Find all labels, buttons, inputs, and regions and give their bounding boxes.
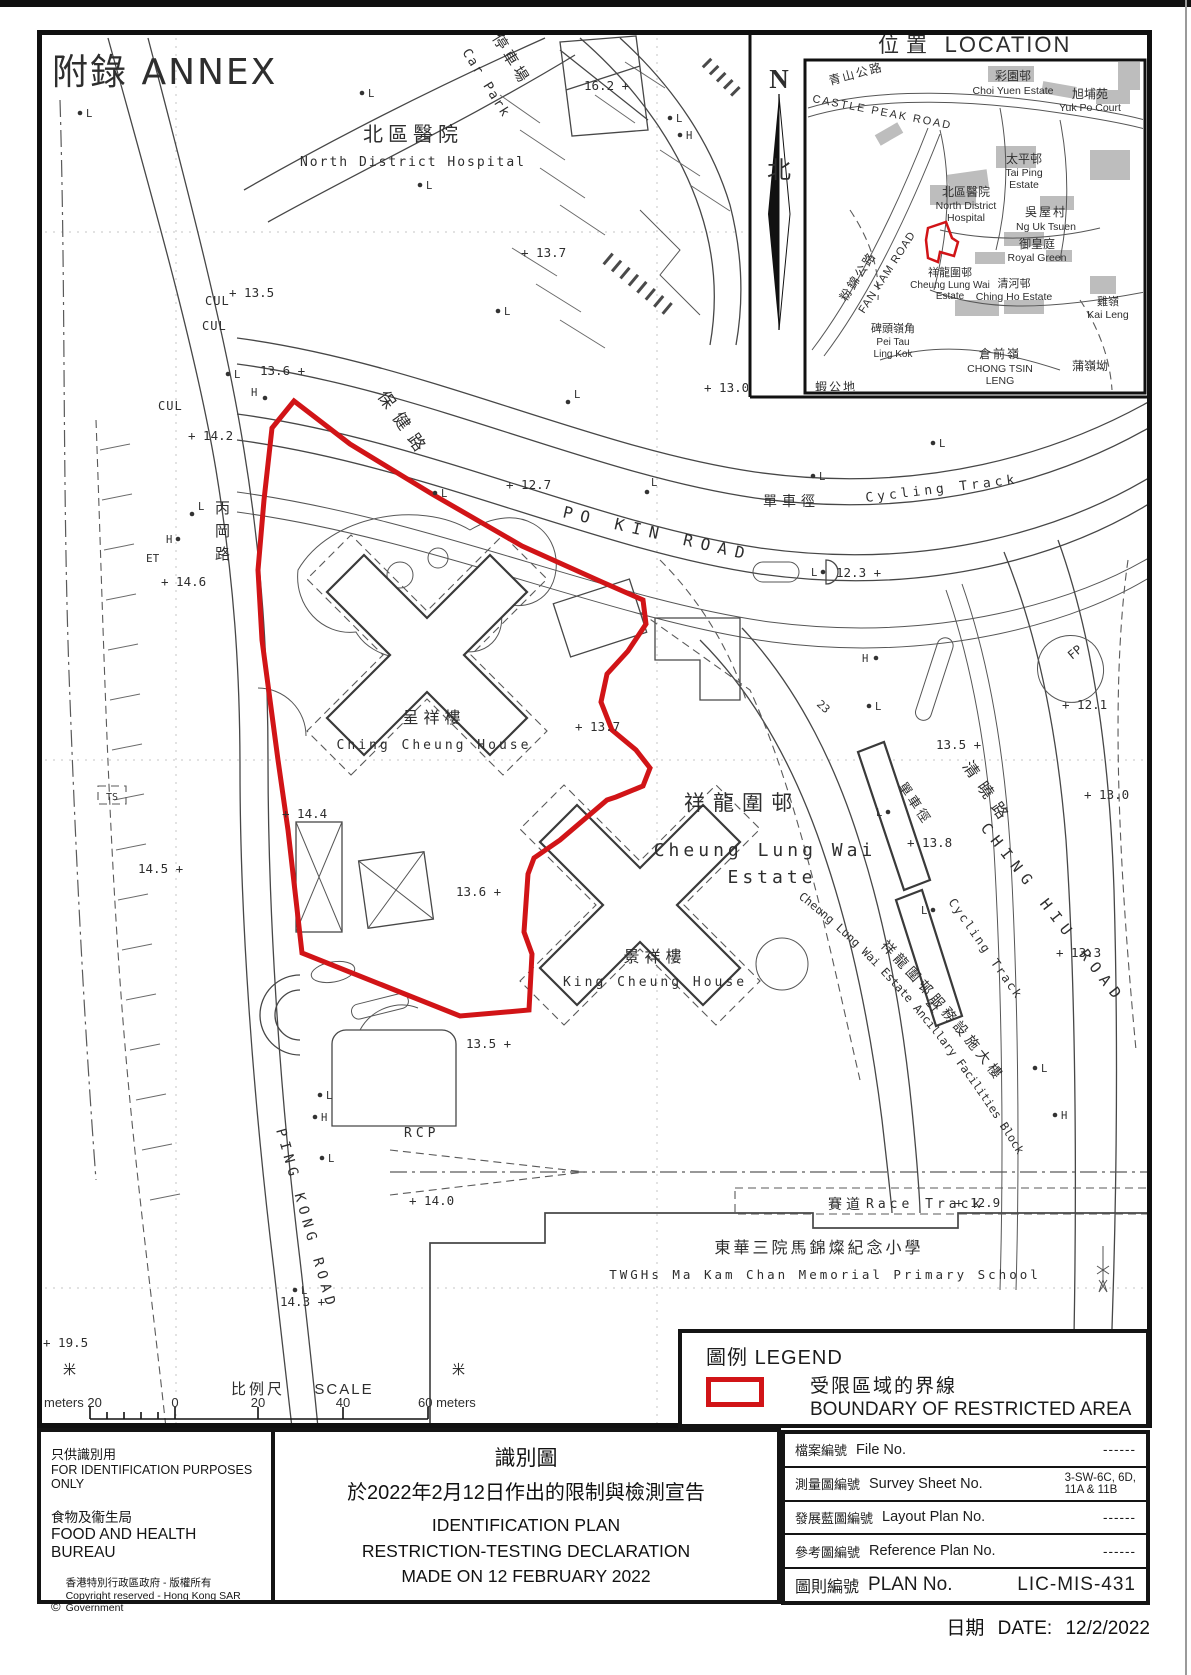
marker-L: L (326, 1090, 332, 1102)
inset-taiping-cjk: 太平邨 (1006, 151, 1042, 166)
marker-L: L (811, 567, 817, 579)
plan-declaration-en2: MADE ON 12 FEBRUARY 2022 (401, 1564, 650, 1589)
copyright-cjk: 香港特別行政區政府 - 版權所有 (66, 1577, 212, 1589)
spot-height: + 13.3 (1056, 945, 1101, 960)
marker-L: L (651, 477, 657, 489)
inset-ndh-en1: North District (936, 200, 997, 212)
marker-H: H (251, 387, 257, 399)
inset-taiping-en2: Estate (1009, 179, 1039, 191)
marker-L: L (504, 306, 510, 318)
marker-L: L (86, 108, 92, 120)
plan-title-panel: 識別圖 於2022年2月12日作出的限制與檢測宣告 IDENTIFICATION… (275, 1428, 781, 1604)
row-label-en: File No. (856, 1442, 906, 1458)
cul-label-3: CUL (158, 399, 183, 413)
inset-chongtsin-cjk: 倉前嶺 (979, 346, 1021, 361)
legend-title-cjk: 圖例 (706, 1347, 748, 1369)
marker-H: H (321, 1112, 327, 1124)
inset-clw-cjk: 祥龍圍邨 (928, 265, 972, 279)
row-label-cjk: 參考圖編號 (795, 1542, 860, 1561)
legend-boundary-cjk: 受限區域的界線 (810, 1371, 957, 1398)
inset-peitau-en2: Ling Kok (874, 349, 914, 360)
inset-ng-en: Ng Uk Tsuen (1016, 221, 1076, 233)
plan-title-cjk: 識別圖 (495, 1442, 558, 1472)
marker-H: H (1061, 1110, 1067, 1122)
school-label-en: TWGHs Ma Kam Chan Memorial Primary Schoo… (609, 1267, 1041, 1282)
spot-height: + 14.0 (409, 1193, 454, 1208)
inset-choi-cjk: 彩園邨 (995, 69, 1031, 83)
row-label-en: PLAN No. (868, 1574, 952, 1596)
car-park-label-cjk: 停車場 (489, 31, 534, 89)
plan-number: LIC-MIS-431 (1017, 1574, 1136, 1596)
inset-chongtsin-en2: LENG (986, 375, 1015, 387)
spot-height: + 13.5 (229, 285, 274, 300)
inset-royal-en: Royal Green (1008, 252, 1067, 264)
row-label-cjk: 發展藍圖編號 (795, 1508, 873, 1527)
date-label-en: DATE: (998, 1618, 1053, 1639)
row-label-en: Reference Plan No. (869, 1543, 996, 1559)
date-line: 日期 DATE: 12/2/2022 (781, 1613, 1150, 1640)
table-row-file-no: 檔案編號 File No. ------ (785, 1434, 1146, 1466)
row-label-en: Layout Plan No. (882, 1509, 985, 1525)
marker-L: L (441, 488, 447, 500)
table-row-plan-no: 圖則編號 PLAN No. LIC-MIS-431 (785, 1567, 1146, 1601)
ching-cheung-house-label-en: Ching Cheung House (337, 738, 532, 753)
table-row-layout-plan: 發展藍圖編號 Layout Plan No. ------ (785, 1500, 1146, 1534)
inset-taiping-en1: Tai Ping (1005, 167, 1043, 179)
identification-plan-page: 附錄 ANNEX 停車場 Car Park 北區醫院 North Distric… (0, 0, 1191, 1675)
spot-height: + 19.5 (43, 1335, 88, 1350)
row-label-cjk: 測量圖編號 (795, 1474, 860, 1493)
spot-height: + 14.6 (161, 574, 206, 589)
marker-L: L (939, 438, 945, 450)
marker-L: L (301, 1285, 307, 1297)
row-label-en: Survey Sheet No. (869, 1476, 983, 1492)
cul-label-1: CUL (205, 294, 230, 308)
inset-yuk-cjk: 旭埔苑 (1072, 87, 1108, 101)
restricted-boundary-symbol (706, 1377, 764, 1407)
spot-height: 13.6 + (456, 884, 501, 899)
scale-meter-cjk-right: 米 (452, 1363, 465, 1378)
marker-L: L (876, 807, 882, 819)
copyright: © 香港特別行政區政府 - 版權所有 Copyright reserved - … (51, 1575, 261, 1614)
spot-height: + 13.7 (521, 245, 566, 260)
legend-box: 圖例 LEGEND 受限區域的界線 BOUNDARY OF RESTRICTED… (678, 1329, 1150, 1428)
scale-left-label: meters 20 (44, 1395, 102, 1410)
estate-name-cjk: 祥龍圍邨 (684, 791, 800, 815)
id-purpose-cjk: 只供識別用 (51, 1444, 261, 1463)
inset-title-cjk: 位置 (878, 33, 934, 57)
date-value: 12/2/2022 (1065, 1618, 1150, 1639)
fp-label: FP (1065, 642, 1085, 662)
inset-po-cjk: 蒲嶺坳 (1072, 359, 1108, 373)
location-inset: 位置 LOCATION N 北 (748, 30, 1150, 399)
inset-peitau-en1: Pei Tau (876, 337, 909, 348)
marker-L: L (198, 501, 204, 513)
reference-table: 檔案編號 File No. ------ 測量圖編號 Survey Sheet … (781, 1430, 1150, 1605)
inset-yuk-en: Yuk Po Court (1059, 102, 1121, 114)
ping-kong-road-label-cjk: 丙岡路 (213, 500, 231, 569)
spot-height: 13.5 + (466, 1036, 511, 1051)
north-arrow-n: N (769, 64, 789, 94)
copyright-text: 香港特別行政區政府 - 版權所有 Copyright reserved - Ho… (66, 1575, 261, 1614)
row-value: ------ (1103, 1544, 1136, 1559)
spot-height: + 13.0 (704, 380, 749, 395)
stairs (607, 62, 740, 310)
id-purpose-en: FOR IDENTIFICATION PURPOSES ONLY (51, 1463, 261, 1491)
plan-declaration-en1: RESTRICTION-TESTING DECLARATION (362, 1539, 690, 1564)
inset-choi-en: Choi Yuen Estate (973, 85, 1054, 97)
estate-name-en-line1: Cheung Lung Wai (654, 840, 877, 861)
table-row-survey-sheet: 測量圖編號 Survey Sheet No. 3-SW-6C, 6D, 11A … (785, 1466, 1146, 1500)
spot-height: 13.6 + (260, 363, 305, 378)
spot-height: + 12.7 (506, 477, 551, 492)
cycling-track-top-label-cjk: 單車徑 (763, 493, 820, 510)
marker-H: H (166, 534, 172, 546)
inset-chingho-en: Ching Ho Estate (976, 291, 1053, 303)
inset-kai-en: Kai Leng (1087, 309, 1129, 321)
survey-sheet-line2: 11A & 11B (1065, 1484, 1136, 1496)
hospital-label-en: North District Hospital (300, 155, 526, 170)
spot-height: + 12.1 (1062, 697, 1107, 712)
school-label-cjk: 東華三院馬錦燦紀念小學 (714, 1238, 923, 1257)
spot-height: 13.5 + (936, 737, 981, 752)
ching-hiu-road-label-cjk: 清曉路 (959, 757, 1018, 829)
marker-L: L (574, 389, 580, 401)
cul-label-2: CUL (202, 319, 227, 333)
identification-panel: 只供識別用 FOR IDENTIFICATION PURPOSES ONLY 食… (37, 1428, 275, 1604)
marker-L: L (1041, 1063, 1047, 1075)
marker-L: L (921, 905, 927, 917)
plan-declaration-cjk: 於2022年2月12日作出的限制與檢測宣告 (347, 1476, 705, 1505)
row-value: 3-SW-6C, 6D, 11A & 11B (1065, 1472, 1136, 1496)
king-cheung-house-label-cjk: 景祥樓 (623, 947, 686, 966)
inset-title-en: LOCATION (945, 32, 1072, 57)
marker-L: L (426, 180, 432, 192)
estate-lot-boundaries (640, 560, 860, 1080)
bureau-en: FOOD AND HEALTH BUREAU (51, 1526, 261, 1562)
king-cheung-house-label-en: King Cheung House (563, 975, 747, 990)
marker-L: L (819, 471, 825, 483)
spot-height: + 14.4 (282, 806, 327, 821)
row-value: ------ (1103, 1442, 1136, 1457)
scale-right-label: 60 meters (418, 1395, 476, 1410)
rcp-label: RCP (404, 1126, 439, 1141)
ts-label: TS (106, 792, 118, 803)
marker-L: L (875, 701, 881, 713)
spot-height: + 13.7 (575, 719, 620, 734)
marker-L: L (328, 1153, 334, 1165)
table-row-reference-plan: 參考圖編號 Reference Plan No. ------ (785, 1533, 1146, 1567)
inset-royal-cjk: 御皇庭 (1019, 236, 1055, 251)
survey-sheet-line1: 3-SW-6C, 6D, (1065, 1472, 1136, 1484)
copyright-en: Copyright reserved - Hong Kong SAR Gover… (66, 1590, 241, 1614)
spot-height: + 13.8 (907, 835, 952, 850)
inset-chingho-cjk: 清河邨 (998, 277, 1031, 290)
spot-height: + 13.0 (1084, 787, 1129, 802)
level-23-label: 23 (814, 698, 833, 717)
po-kin-road-label-cjk: 保健路 (373, 387, 434, 462)
row-label-cjk: 檔案編號 (795, 1440, 847, 1459)
marker-H: H (862, 653, 868, 665)
legend-title-en: LEGEND (755, 1347, 843, 1369)
inset-clw-en2: Estate (936, 291, 965, 302)
row-value: ------ (1103, 1510, 1136, 1525)
spot-height: 16.2 + (584, 78, 629, 93)
bureau-cjk: 食物及衞生局 (51, 1506, 261, 1526)
copyright-icon: © (51, 1599, 61, 1614)
et-label: ET (146, 552, 160, 565)
inset-ng-cjk: 吳屋村 (1025, 205, 1067, 219)
legend-title: 圖例 LEGEND (706, 1341, 843, 1370)
annex-title: 附錄 ANNEX (52, 52, 277, 93)
spot-height: 14.5 + (138, 861, 183, 876)
marker-L: L (368, 88, 374, 100)
inset-ndh-cjk: 北區醫院 (942, 185, 990, 199)
plan-title-en: IDENTIFICATION PLAN (432, 1513, 620, 1538)
estate-name-en-line2: Estate (727, 867, 816, 888)
inset-clw-en1: Cheung Lung Wai (910, 280, 990, 291)
inset-ndh-en2: Hospital (947, 212, 985, 224)
inset-chongtsin-en1: CHONG TSIN (967, 363, 1033, 375)
spot-height: 12.3 + (836, 565, 881, 580)
inset-peitau-cjk: 碑頭嶺角 (871, 322, 915, 335)
north-arrow-cjk: 北 (767, 156, 791, 184)
scale-bar: 比例尺 SCALE 米 米 meters 20 0 20 40 60 meter… (44, 1363, 476, 1419)
marker-L: L (676, 113, 682, 125)
legend-boundary-en: BOUNDARY OF RESTRICTED AREA (810, 1399, 1131, 1421)
spot-height: + 12.9 (955, 1195, 1000, 1210)
race-track-label-cjk: 賽道 (828, 1196, 864, 1213)
spot-height: + 14.2 (188, 428, 233, 443)
marker-L: L (234, 369, 240, 381)
ching-cheung-house-label-cjk: 呈祥樓 (402, 708, 465, 727)
marker-H: H (686, 130, 692, 142)
date-label-cjk: 日期 (946, 1618, 984, 1639)
inset-kai-cjk: 雞嶺 (1097, 294, 1119, 308)
row-label-cjk: 圖則編號 (795, 1573, 859, 1597)
scale-meter-cjk-left: 米 (63, 1363, 76, 1378)
hospital-label-cjk: 北區醫院 (363, 122, 463, 146)
